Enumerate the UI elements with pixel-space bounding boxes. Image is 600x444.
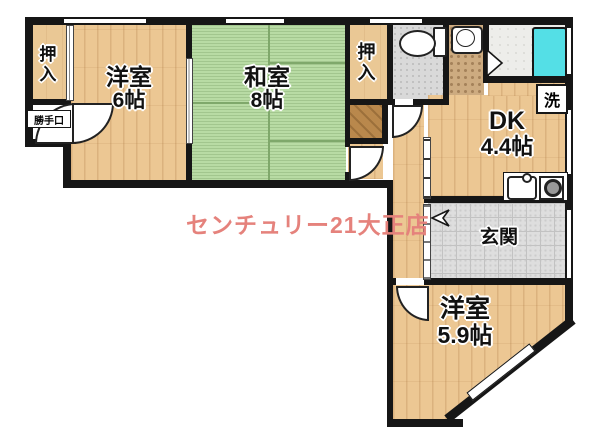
window-top-toilet (370, 17, 422, 25)
label-japanese8: 和室 8帖 (226, 65, 308, 113)
western59-size: 5.9帖 (413, 323, 517, 348)
washbasin-bowl-icon (456, 29, 475, 47)
step-storage (348, 105, 383, 138)
watermark-text: センチュリー21大正店 (186, 206, 430, 240)
bathroom-door-mark (486, 49, 504, 77)
kitchen-door-label: 勝手口 (34, 112, 64, 127)
western59-name: 洋室 (413, 296, 517, 323)
sliding-door-hall-dk (423, 137, 431, 199)
wall-toilet-left (387, 17, 393, 105)
sliding-door-closet-tl (66, 25, 74, 101)
faucet-icon (522, 173, 532, 183)
window-right-dk (565, 110, 573, 174)
wall-japanese-right (345, 25, 350, 147)
hall-59-door-gap (396, 278, 424, 285)
label-dk: DK 4.4帖 (448, 108, 566, 159)
floor-plan: 洋室 6帖 和室 8帖 DK 4.4帖 洋室 5.9帖 玄関 押入 押入 洗 勝… (0, 0, 600, 444)
toilet-bowl-icon (399, 30, 436, 57)
sliding-door-6-8 (186, 58, 193, 144)
laundry-label: 洗 (544, 87, 560, 111)
label-western59: 洋室 5.9帖 (413, 296, 517, 348)
tatami-seam (268, 140, 346, 142)
entrance-door-right (565, 210, 573, 278)
window-top-japanese8 (226, 17, 284, 25)
wall-step-bottom (348, 138, 388, 144)
wall-bath-bottom (483, 76, 573, 83)
label-closet-middle: 押入 (355, 32, 374, 94)
window-top-west6 (64, 17, 146, 25)
kitchen-door-box: 勝手口 (27, 110, 71, 128)
label-genkan: 玄関 (468, 228, 530, 249)
entry-direction-arrow-icon (427, 208, 451, 228)
bathtub (532, 27, 567, 79)
western6-name: 洋室 (88, 65, 170, 90)
label-western6: 洋室 6帖 (88, 65, 170, 113)
wall-upper-block-bottom (63, 180, 393, 188)
western6-size: 6帖 (88, 90, 170, 113)
window-right-bath (565, 28, 573, 74)
dk-size: 4.4帖 (448, 135, 566, 159)
japanese8-size: 8帖 (226, 90, 308, 113)
laundry-box: 洗 (536, 84, 568, 114)
japanese8-name: 和室 (226, 65, 308, 90)
label-closet-top-left: 押入 (36, 36, 54, 94)
stove-burner-icon (544, 179, 562, 197)
